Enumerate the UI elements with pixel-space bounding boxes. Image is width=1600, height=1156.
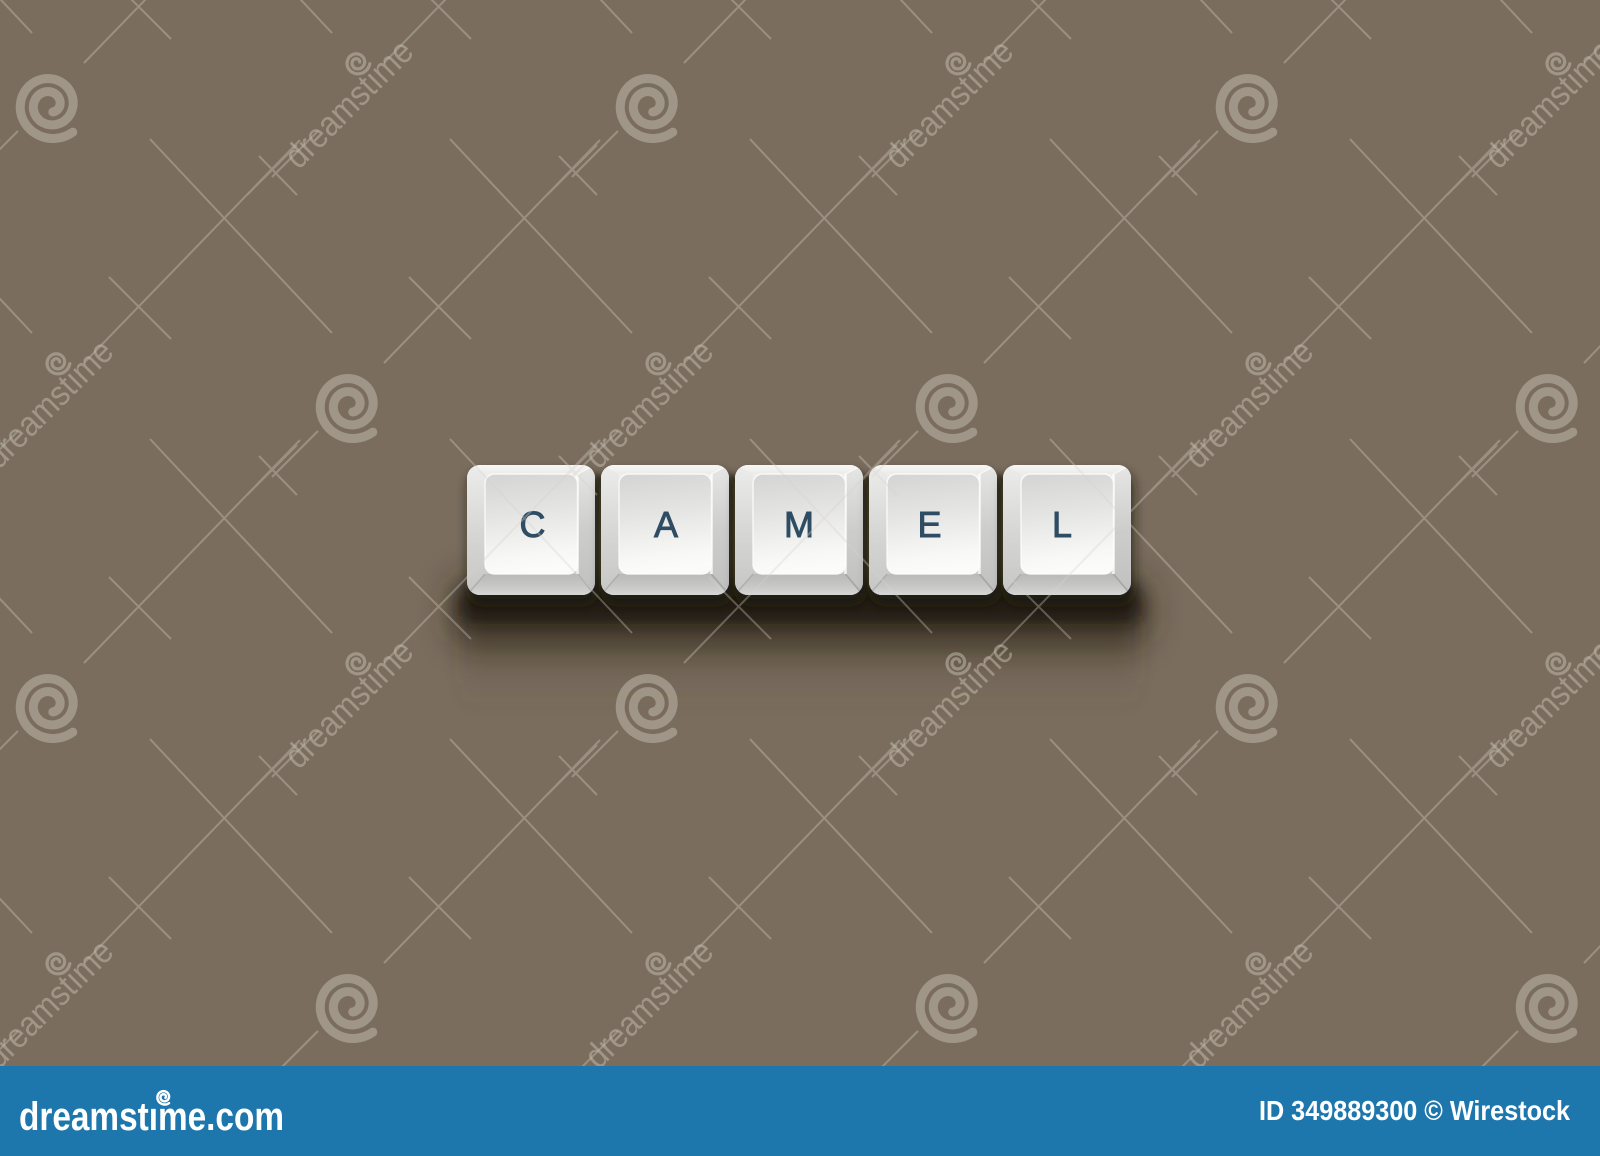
svg-text:L: L — [1052, 504, 1072, 545]
svg-text:E: E — [917, 504, 941, 545]
svg-text:ID 349889300 © Wirestock: ID 349889300 © Wirestock — [1259, 1095, 1571, 1126]
svg-text:A: A — [654, 504, 678, 545]
svg-text:M: M — [784, 504, 814, 545]
svg-text:dreamstıme.com: dreamstıme.com — [19, 1095, 284, 1139]
